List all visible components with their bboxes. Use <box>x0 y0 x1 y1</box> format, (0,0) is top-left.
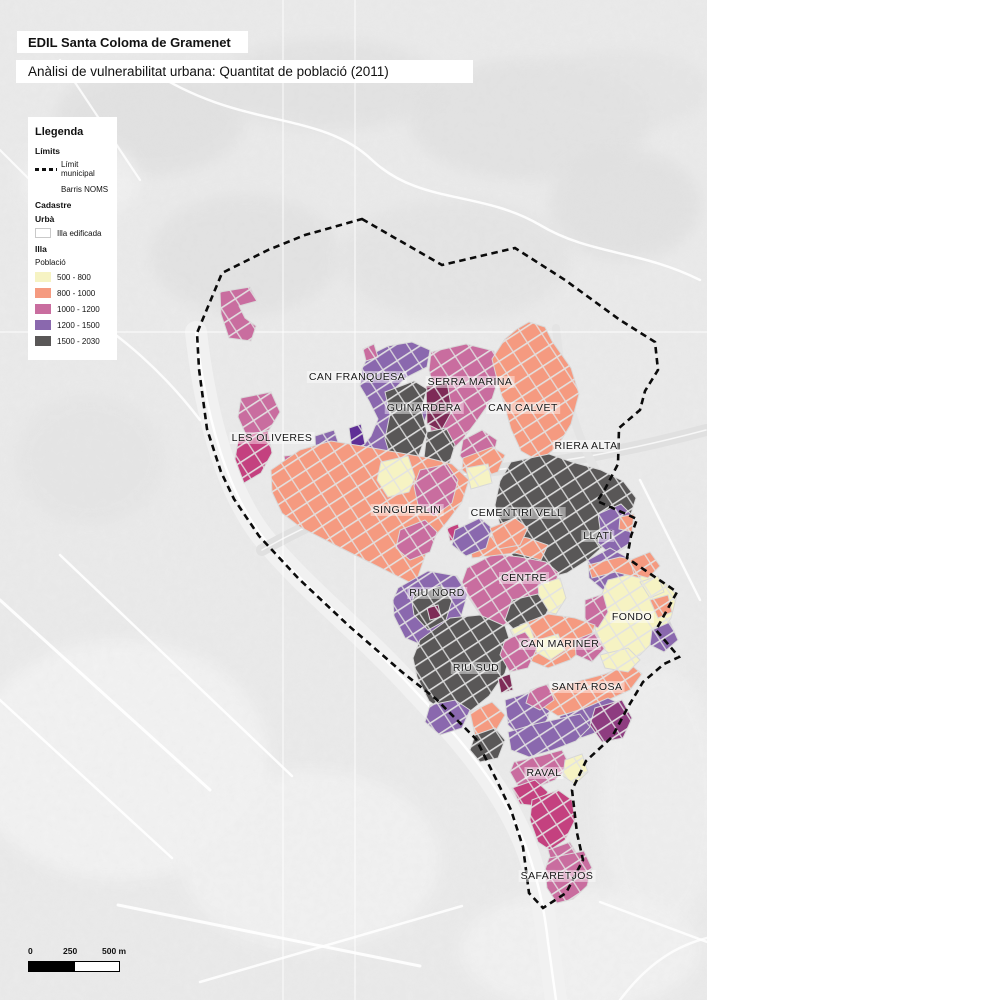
legend-class-label: 800 - 1000 <box>57 289 95 298</box>
class-swatch-icon <box>35 304 51 314</box>
legend-item-illa-edificada: Illa edificada <box>35 228 111 238</box>
scale-label-0: 0 <box>28 946 33 956</box>
legend-class-label: 1500 - 2030 <box>57 337 100 346</box>
scale-bar-graphic <box>28 961 120 972</box>
legend-illa-heading: Illa <box>35 244 111 254</box>
legend-class-row: 500 - 800 <box>35 272 111 282</box>
white-swatch-icon <box>35 228 51 238</box>
map-title-bar: EDIL Santa Coloma de Gramenet <box>17 31 248 53</box>
legend-poblacio-label: Població <box>35 258 111 267</box>
legend-cadastre-heading-1: Cadastre <box>35 200 111 210</box>
map-subtitle-bar: Anàlisi de vulnerabilitat urbana: Quanti… <box>16 60 473 83</box>
scale-bar-labels: 0 250 500 m <box>28 946 148 957</box>
legend-panel: Llegenda Límits Límit municipal Barris N… <box>28 117 117 360</box>
scale-label-500: 500 m <box>102 946 126 956</box>
legend-class-label: 1000 - 1200 <box>57 305 100 314</box>
legend-barris-label: Barris NOMS <box>61 185 108 194</box>
class-swatch-icon <box>35 336 51 346</box>
legend-class-label: 1200 - 1500 <box>57 321 100 330</box>
map-title: EDIL Santa Coloma de Gramenet <box>28 35 231 50</box>
legend-cadastre-heading-2: Urbà <box>35 214 111 224</box>
legend-item-barris: Barris NOMS <box>61 184 111 194</box>
legend-class-row: 1500 - 2030 <box>35 336 111 346</box>
legend-class-row: 800 - 1000 <box>35 288 111 298</box>
legend-item-limit-municipal: Límit municipal <box>35 160 111 178</box>
legend-title: Llegenda <box>35 126 111 138</box>
scale-label-250: 250 <box>63 946 77 956</box>
scale-bar: 0 250 500 m <box>28 946 148 972</box>
scale-bar-black-segment <box>29 962 75 971</box>
class-swatch-icon <box>35 320 51 330</box>
class-swatch-icon <box>35 288 51 298</box>
legend-limits-heading: Límits <box>35 146 111 156</box>
map-sheet: CAN FRANQUESASERRA MARINAGUINARDERACAN C… <box>0 0 1000 1000</box>
dashed-line-icon <box>35 168 57 171</box>
map-canvas <box>0 0 1000 1000</box>
map-subtitle: Anàlisi de vulnerabilitat urbana: Quanti… <box>28 64 389 79</box>
legend-illa-edificada-label: Illa edificada <box>57 229 101 238</box>
scale-bar-white-segment <box>75 962 119 971</box>
legend-class-label: 500 - 800 <box>57 273 91 282</box>
legend-class-row: 1200 - 1500 <box>35 320 111 330</box>
legend-limit-municipal-label: Límit municipal <box>61 160 111 178</box>
class-swatch-icon <box>35 272 51 282</box>
legend-class-row: 1000 - 1200 <box>35 304 111 314</box>
